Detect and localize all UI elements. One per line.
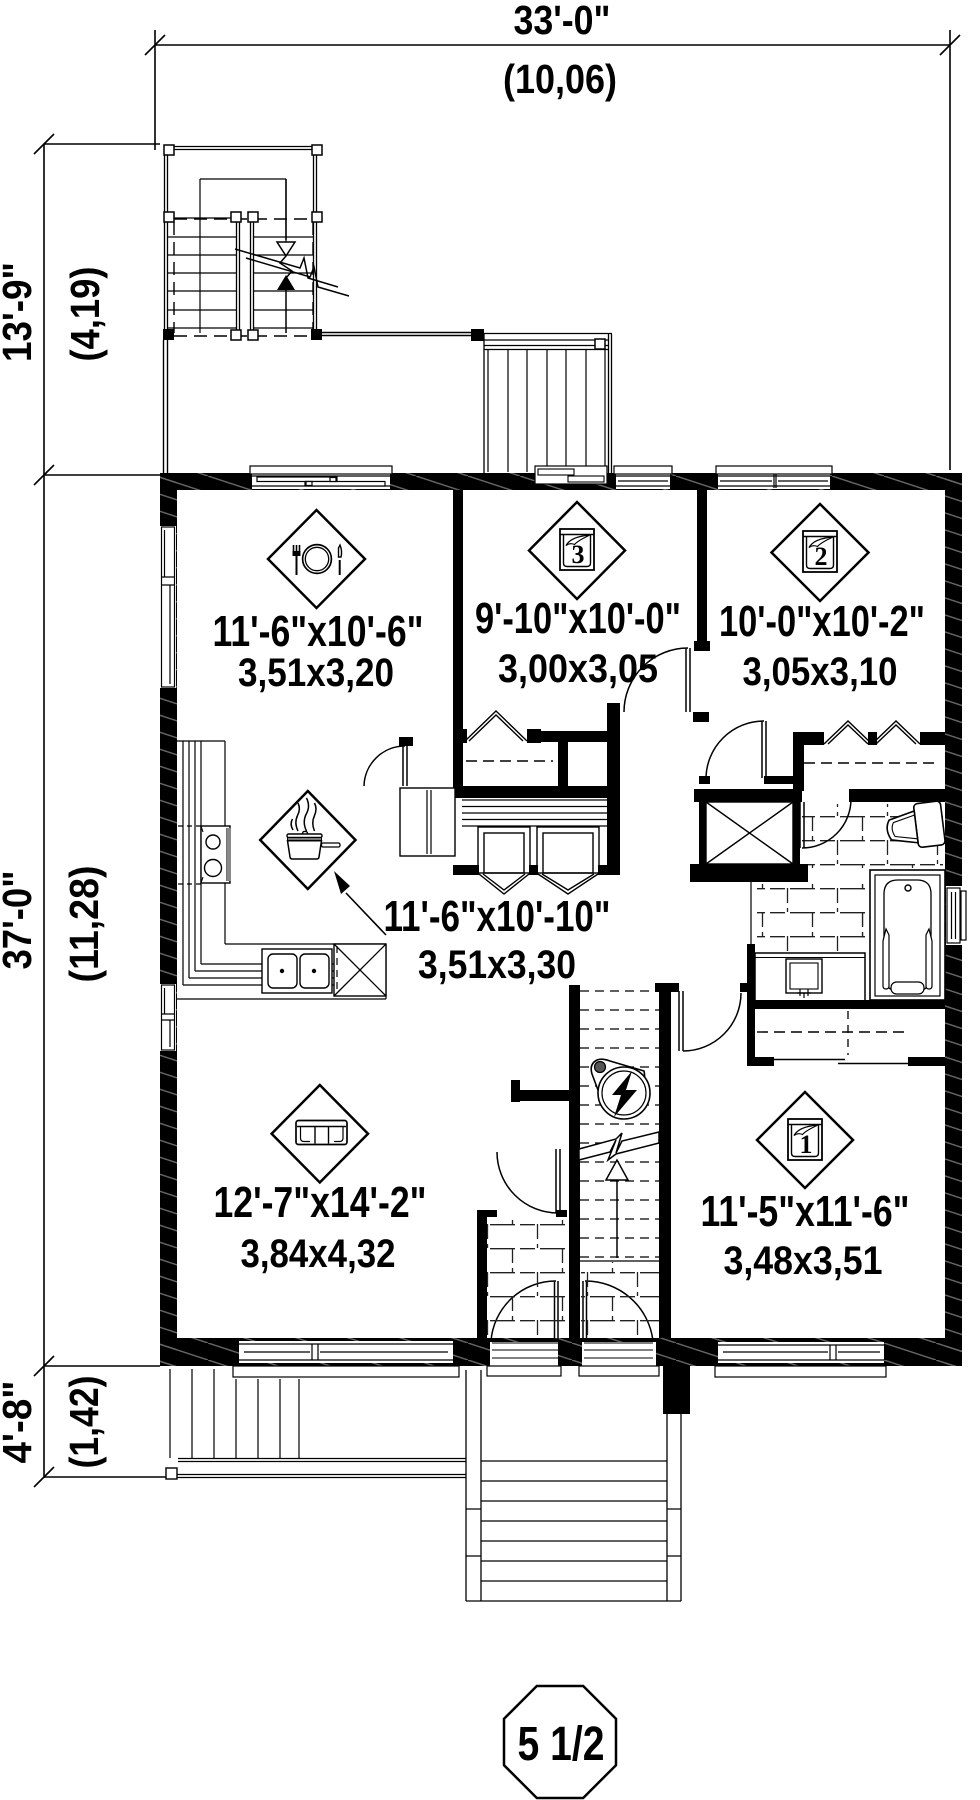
svg-text:11'-6"x10'-10": 11'-6"x10'-10" — [384, 892, 611, 941]
svg-text:(11,28): (11,28) — [61, 866, 107, 983]
svg-text:(4,19): (4,19) — [62, 267, 108, 362]
svg-text:11'-5"x11'-6": 11'-5"x11'-6" — [701, 1187, 910, 1236]
svg-text:9'-10"x10'-0": 9'-10"x10'-0" — [475, 594, 681, 643]
svg-text:3,48x3,51: 3,48x3,51 — [724, 1239, 883, 1283]
svg-text:5 1/2: 5 1/2 — [518, 1718, 605, 1771]
svg-text:1: 1 — [800, 1130, 813, 1159]
svg-text:3,84x4,32: 3,84x4,32 — [241, 1232, 396, 1276]
svg-text:(10,06): (10,06) — [503, 56, 617, 102]
svg-text:3,51x3,20: 3,51x3,20 — [238, 651, 394, 695]
svg-text:2: 2 — [815, 542, 828, 571]
svg-text:4'-8": 4'-8" — [0, 1381, 40, 1464]
svg-text:13'-9": 13'-9" — [0, 262, 40, 362]
svg-text:(1,42): (1,42) — [61, 1376, 107, 1469]
svg-text:3,00x3,05: 3,00x3,05 — [498, 647, 658, 691]
svg-text:3,05x3,10: 3,05x3,10 — [743, 650, 898, 694]
svg-text:33'-0": 33'-0" — [514, 0, 611, 43]
svg-text:3,51x3,30: 3,51x3,30 — [418, 943, 576, 987]
svg-text:11'-6"x10'-6": 11'-6"x10'-6" — [213, 607, 424, 656]
svg-text:12'-7"x14'-2": 12'-7"x14'-2" — [214, 1178, 427, 1227]
svg-text:3: 3 — [572, 540, 585, 569]
svg-text:10'-0"x10'-2": 10'-0"x10'-2" — [719, 597, 925, 646]
svg-text:37'-0": 37'-0" — [0, 871, 40, 970]
